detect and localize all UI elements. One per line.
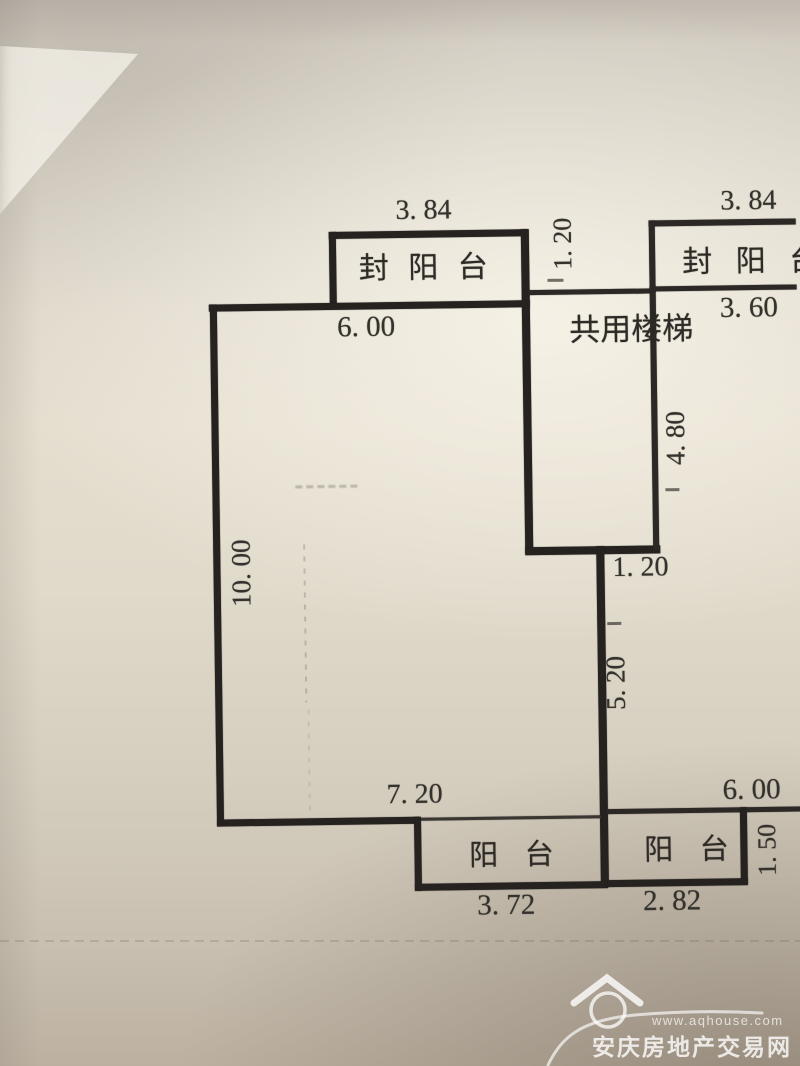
wall-main-right-lower [596,546,609,887]
watermark: www.aqhouse.com 安庆房地产交易网 [540,958,800,1066]
label-balcony-top-left: 封 阳 台 [358,242,494,288]
dim-balcony-br-width: 2. 82 [643,884,701,918]
dim-tick [547,279,563,282]
dim-tick [607,622,621,625]
dim-top-left-width: 3. 84 [395,194,451,227]
dim-right-bottom-width: 6. 00 [722,773,780,807]
dim-lower-right-height: 5. 20 [600,656,632,710]
label-balcony-top-right: 封 阳 台 [682,235,800,281]
label-shared-staircase: 共用楼梯 [569,303,606,357]
wall-main-bottom [217,817,419,827]
dim-tick [665,488,679,491]
wall-neighbor-bottom [607,806,800,814]
wall-balcony-tl-top [329,229,528,239]
wall-main-right-upper [521,229,534,554]
wall-stair-top [529,288,654,295]
watermark-site: 安庆房地产交易网 [592,1028,792,1062]
dim-top-right-width: 3. 84 [720,185,776,218]
wall-balcony-tr-left [649,220,656,292]
floorplan-drawing: 3. 84 1. 20 3. 84 6. 00 3. 60 4. 80 10. … [0,0,800,1066]
floorplan-photo: 3. 84 1. 20 3. 84 6. 00 3. 60 4. 80 10. … [0,0,800,1066]
dim-stair-height: 4. 80 [660,411,692,465]
dim-right-top-width: 3. 60 [720,291,778,325]
dim-main-bottom-width: 7. 20 [386,778,442,811]
dim-left-height: 10. 00 [226,539,258,607]
dim-top-gap: 1. 20 [548,217,579,269]
dim-balcony-bl-width: 3. 72 [477,889,535,923]
copy-crease-vertical [303,544,307,702]
wall-balcony-tl-left [329,232,337,308]
wall-balcony-tr-top [649,218,796,226]
wall-balcony-bl-opening [421,815,601,821]
dim-balcony-br-depth: 1. 50 [752,824,783,876]
watermark-url: www.aqhouse.com [652,1013,784,1028]
copy-smudge-horizontal [295,485,357,489]
wall-balcony-bl-left [414,817,422,891]
wall-balcony-br-right [740,807,748,884]
wall-main-left [210,305,224,826]
label-balcony-bottom-left: 阳 台 [469,831,558,874]
label-balcony-bottom-right: 阳 台 [644,825,733,868]
copy-crease-vertical-faint [307,709,311,829]
dim-mid-offset: 1. 20 [612,551,668,584]
dim-main-top-width: 6. 00 [337,311,395,345]
